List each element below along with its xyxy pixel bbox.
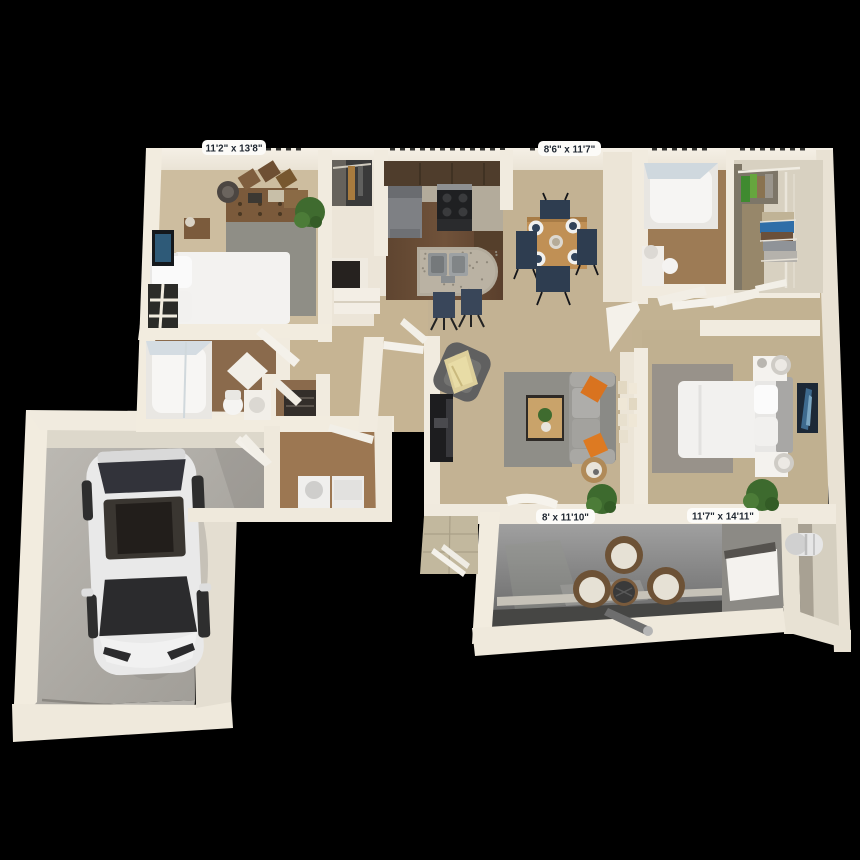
svg-text:8'6" x 11'7": 8'6" x 11'7": [544, 145, 596, 156]
svg-text:11'7" x 14'11": 11'7" x 14'11": [692, 512, 754, 523]
svg-text:8' x 11'10": 8' x 11'10": [542, 513, 589, 524]
svg-text:11'2" x 13'8": 11'2" x 13'8": [206, 144, 263, 155]
